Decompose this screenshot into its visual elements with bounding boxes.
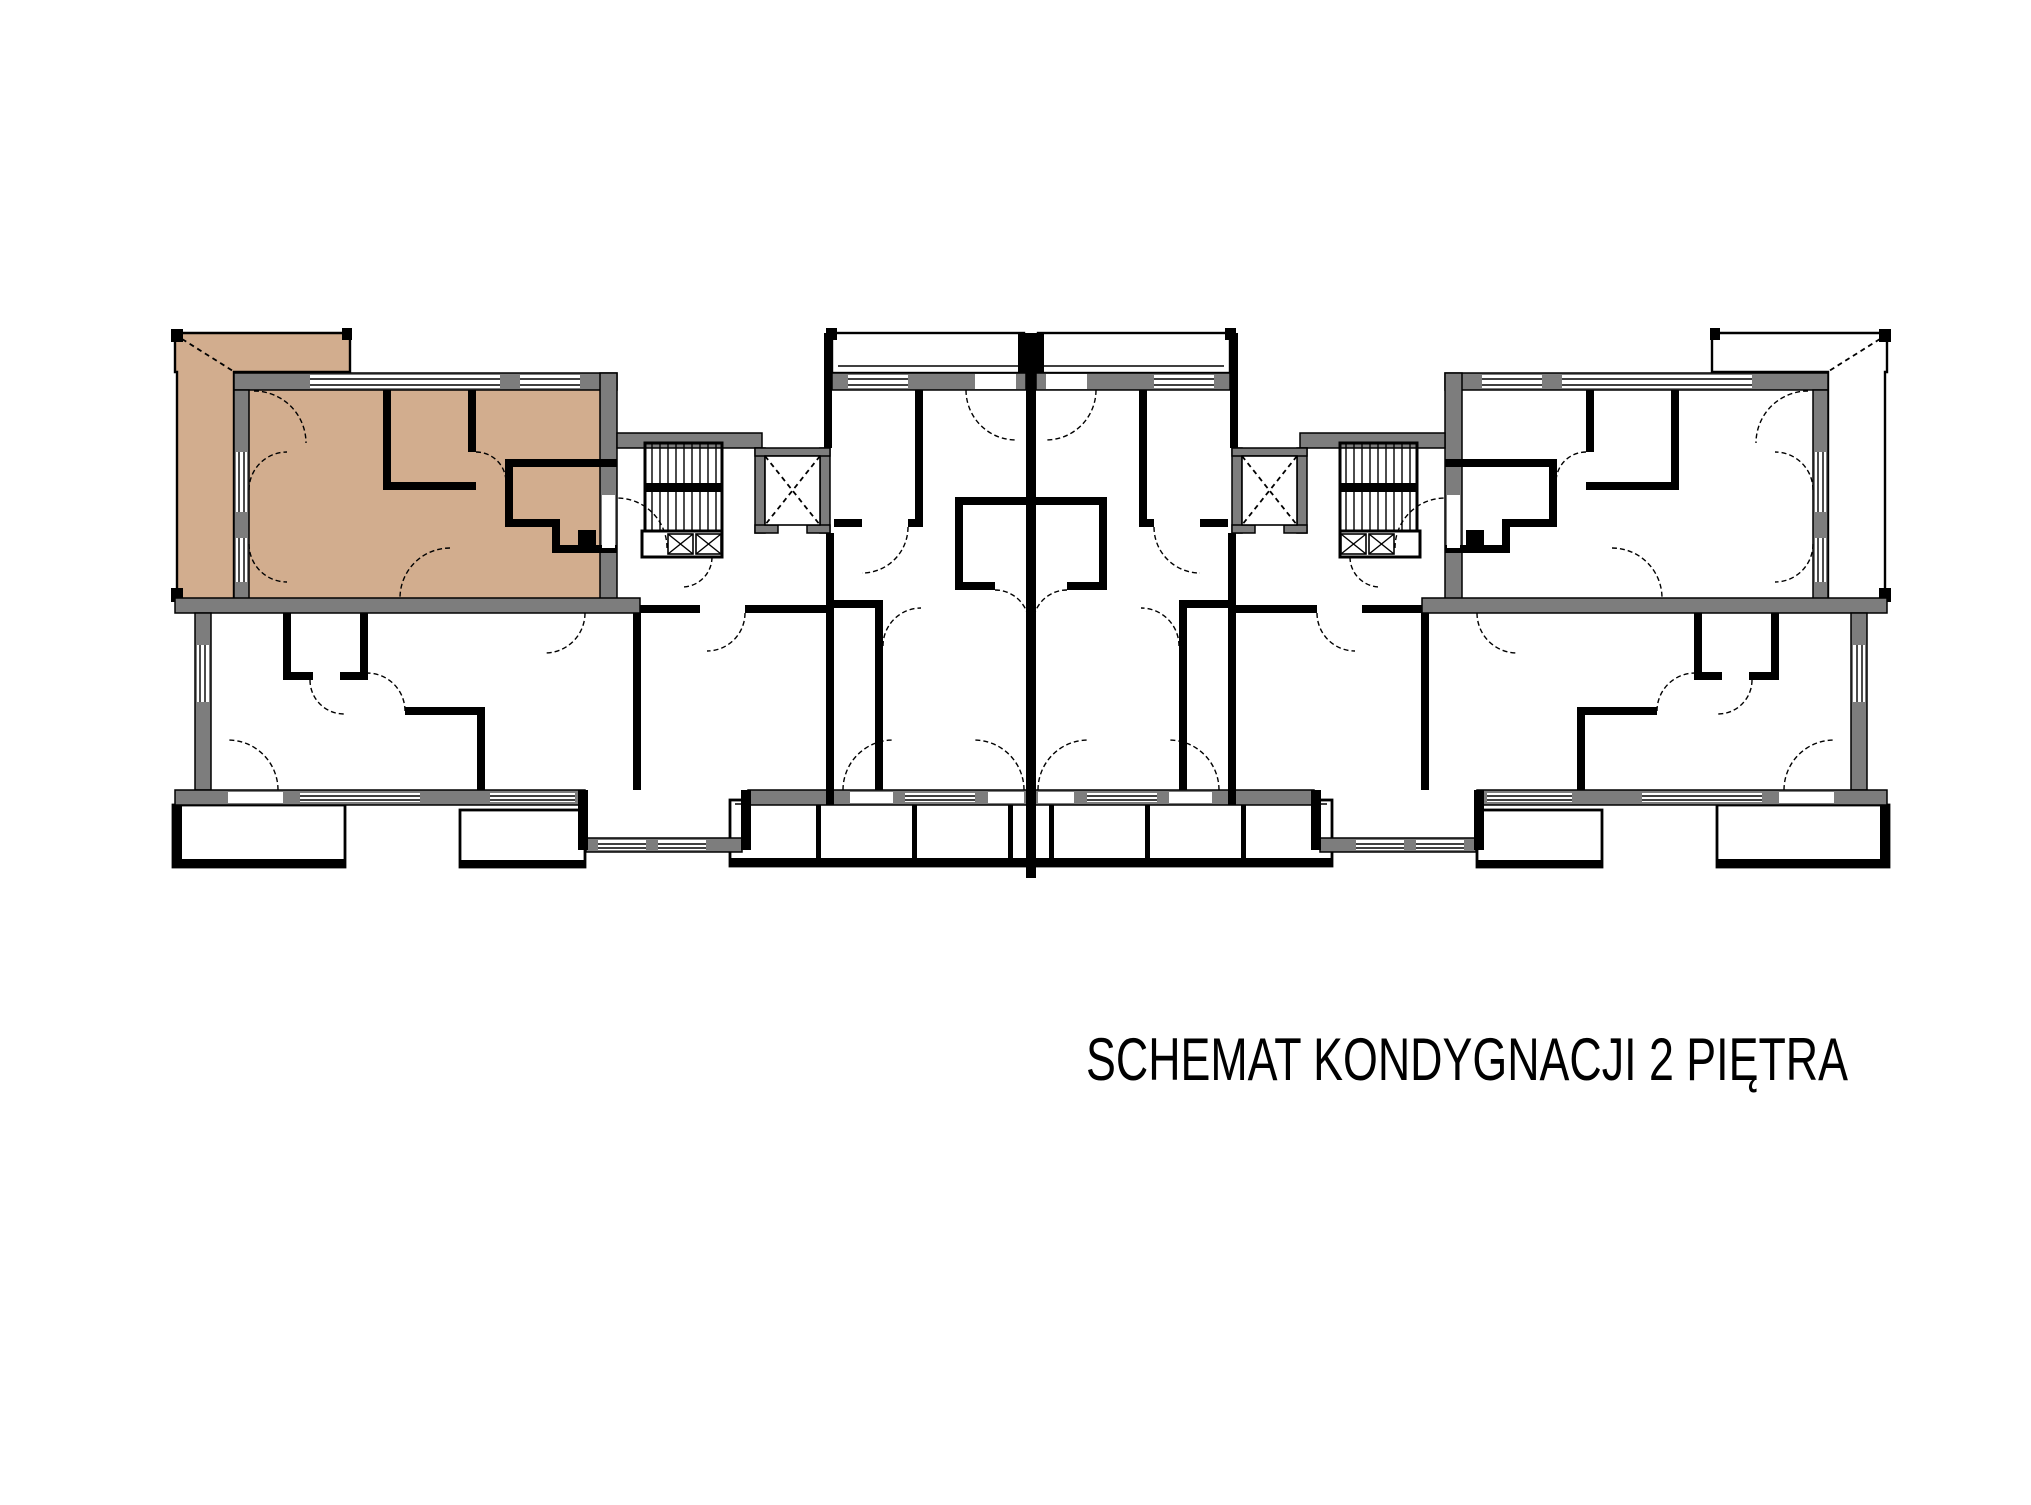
window [236, 538, 247, 582]
door-opening [602, 495, 615, 548]
balcony-edge [173, 859, 345, 868]
window [236, 452, 247, 512]
stair-landing [645, 483, 722, 492]
window [310, 375, 500, 388]
balcony-divider [912, 800, 917, 866]
bottom-balcony-block [730, 800, 1031, 866]
right-wing-mirror [1031, 328, 1891, 878]
highlighted-unit-floor [234, 381, 614, 605]
balcony-edge [460, 860, 585, 868]
shaft [578, 530, 596, 545]
center-party-wall [1026, 333, 1031, 878]
window [905, 793, 975, 802]
plan-title: SCHEMAT KONDYGNACJI 2 PIĘTRA [1086, 1026, 1848, 1093]
window [658, 840, 706, 850]
window [197, 645, 209, 702]
bottom-corner-balcony [173, 805, 345, 867]
balcony-edge [173, 805, 182, 867]
window [848, 375, 908, 388]
window [598, 840, 646, 850]
balcony-post [171, 329, 183, 342]
floor-plan-drawing: SCHEMAT KONDYGNACJI 2 PIĘTRA [0, 0, 2031, 1505]
door-opening [988, 792, 1024, 803]
lower-left-unit-floor [211, 613, 633, 790]
floor-plan-page: SCHEMAT KONDYGNACJI 2 PIĘTRA [0, 0, 2031, 1505]
window [490, 793, 575, 802]
elevator [755, 448, 830, 533]
balcony-divider [816, 800, 821, 866]
balcony-edge [730, 858, 1031, 867]
wall-mid-band [175, 598, 640, 613]
door-opening [850, 792, 893, 803]
left-wing [171, 328, 1031, 878]
window [520, 375, 580, 388]
window [300, 793, 420, 802]
wall-unit-right [600, 373, 617, 605]
door-opening [975, 374, 1016, 389]
door-opening [228, 792, 283, 803]
balcony-divider [1008, 800, 1013, 866]
balcony-post [342, 328, 352, 340]
bottom-balcony [460, 810, 585, 867]
top-center-balcony [832, 333, 1024, 373]
